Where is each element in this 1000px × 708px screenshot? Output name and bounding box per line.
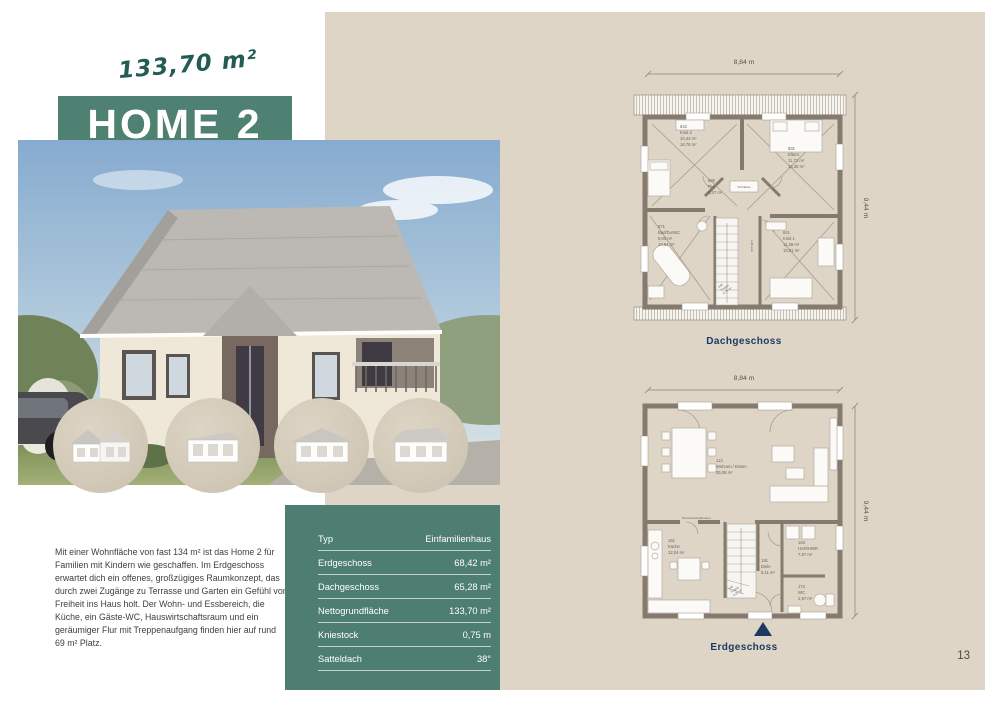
table-row: Dachgeschoss 65,28 m² — [318, 575, 491, 599]
spec-value: 0,75 m — [463, 630, 491, 640]
svg-text:842: 842 — [680, 124, 688, 129]
spec-value: 68,42 m² — [454, 558, 491, 568]
table-row: Nettogrundfläche 133,70 m² — [318, 599, 491, 623]
spec-label: Dachgeschoss — [318, 582, 379, 592]
svg-text:886: 886 — [708, 178, 716, 183]
floor-plan-erdgeschoss: 8,84 m 9,44 m — [620, 366, 870, 666]
roof-overhang-band-top — [634, 95, 846, 115]
room-label-wohnen: 113 Wohnen / Essen 35,08 m² — [716, 458, 747, 475]
page-number: 13 — [940, 650, 970, 662]
house-variant-3-icon — [289, 424, 355, 468]
spec-label: Kniestock — [318, 630, 358, 640]
spec-label: Typ — [318, 534, 333, 544]
entrance-marker-icon — [754, 622, 772, 636]
svg-text:12,04 m²: 12,04 m² — [668, 550, 685, 555]
svg-text:871: 871 — [658, 224, 666, 229]
svg-text:7,97 m²: 7,97 m² — [798, 552, 813, 557]
svg-text:19,01 m²: 19,01 m² — [783, 248, 800, 253]
table-row: Typ Einfamilienhaus — [318, 527, 491, 551]
svg-text:9,00 m²: 9,00 m² — [658, 236, 673, 241]
svg-text:Flur: Flur — [708, 184, 716, 189]
svg-text:11,71 m²: 11,71 m² — [788, 158, 805, 163]
svg-text:113: 113 — [716, 458, 723, 463]
svg-text:184: 184 — [798, 540, 806, 545]
spec-value: Einfamilienhaus — [425, 534, 491, 544]
spec-value: 133,70 m² — [449, 606, 491, 616]
table-row: Erdgeschoss 68,42 m² — [318, 551, 491, 575]
void-label: Luftraum — [750, 240, 754, 253]
svg-text:16,38 m²: 16,38 m² — [788, 164, 805, 169]
house-variant-thumbnail-4 — [373, 398, 468, 493]
svg-text:Wohnen / Essen: Wohnen / Essen — [716, 464, 747, 469]
svg-text:16,78 m²: 16,78 m² — [680, 142, 697, 147]
room-label-wc: 172 WC 2,97 m² — [798, 584, 813, 601]
room-label-kueche: 161 Küche 12,04 m² — [668, 538, 685, 555]
svg-text:Diele: Diele — [761, 564, 771, 569]
svg-text:3,47 m²: 3,47 m² — [708, 190, 723, 195]
svg-text:161: 161 — [668, 538, 676, 543]
svg-text:2,97 m²: 2,97 m² — [798, 596, 813, 601]
table-row: Kniestock 0,75 m — [318, 623, 491, 647]
svg-text:WC: WC — [798, 590, 805, 595]
dimension-height-label: 9,44 m — [862, 501, 869, 522]
balcony — [352, 338, 440, 392]
utility-label: Hauswirtschaftsraum — [682, 516, 711, 520]
svg-text:831: 831 — [788, 146, 796, 151]
svg-text:Küche: Küche — [668, 544, 681, 549]
plan-caption-erdgeschoss: Erdgeschoss — [710, 642, 777, 653]
svg-text:10,84 m²: 10,84 m² — [658, 242, 675, 247]
room-label-bad: 871 Bad/Du/WC 9,00 m² 10,84 m² — [658, 224, 680, 247]
spec-table: Typ Einfamilienhaus Erdgeschoss 68,42 m²… — [285, 505, 500, 690]
house-variant-1-icon — [68, 424, 134, 468]
svg-text:11,39 m²: 11,39 m² — [783, 242, 800, 247]
house-variant-2-icon — [180, 424, 246, 468]
dimension-width-label: 8,84 m — [734, 375, 755, 382]
brochure-page: 133,70 m² HOME 2 — [0, 0, 1000, 708]
area-script-label: 133,70 m² — [107, 45, 269, 85]
svg-text:172: 172 — [798, 584, 806, 589]
house-variant-thumbnail-2 — [165, 398, 260, 493]
svg-text:35,08 m²: 35,08 m² — [716, 470, 733, 475]
svg-text:Eltern: Eltern — [788, 152, 800, 157]
spec-value: 38° — [477, 654, 491, 664]
room-label-kind1: 841 Kind 1 11,39 m² 19,01 m² — [783, 230, 800, 253]
room-label-hwr: 184 HAR/HWR 7,97 m² — [798, 540, 818, 557]
svg-text:Kind 2: Kind 2 — [680, 130, 693, 135]
spec-label: Satteldach — [318, 654, 362, 664]
svg-text:HAR/HWR: HAR/HWR — [798, 546, 818, 551]
svg-text:Bad/Du/WC: Bad/Du/WC — [658, 230, 680, 235]
svg-text:191: 191 — [761, 558, 769, 563]
dimension-width-label: 8,84 m — [734, 59, 755, 66]
spec-label: Nettogrundfläche — [318, 606, 389, 616]
spec-value: 65,28 m² — [454, 582, 491, 592]
dimension-height-label: 9,44 m — [862, 198, 869, 219]
spec-label: Erdgeschoss — [318, 558, 372, 568]
plan-caption-dachgeschoss: Dachgeschoss — [706, 336, 781, 347]
intro-paragraph: Mit einer Wohnfläche von fast 134 m² ist… — [55, 546, 288, 650]
floor-plan-dachgeschoss: 8,84 m 9,44 m — [620, 48, 870, 358]
house-variant-4-icon — [388, 424, 454, 468]
wardrobe-label: Schränke — [737, 185, 750, 189]
svg-text:6,11 m²: 6,11 m² — [761, 570, 775, 575]
svg-text:Kind 1: Kind 1 — [783, 236, 796, 241]
room-label-diele: 191 Diele 6,11 m² — [761, 558, 775, 575]
svg-text:841: 841 — [783, 230, 791, 235]
house-variant-thumbnail-3 — [274, 398, 369, 493]
table-row: Satteldach 38° — [318, 647, 491, 671]
house-variant-thumbnail-1 — [53, 398, 148, 493]
svg-text:10,43 m²: 10,43 m² — [680, 136, 697, 141]
